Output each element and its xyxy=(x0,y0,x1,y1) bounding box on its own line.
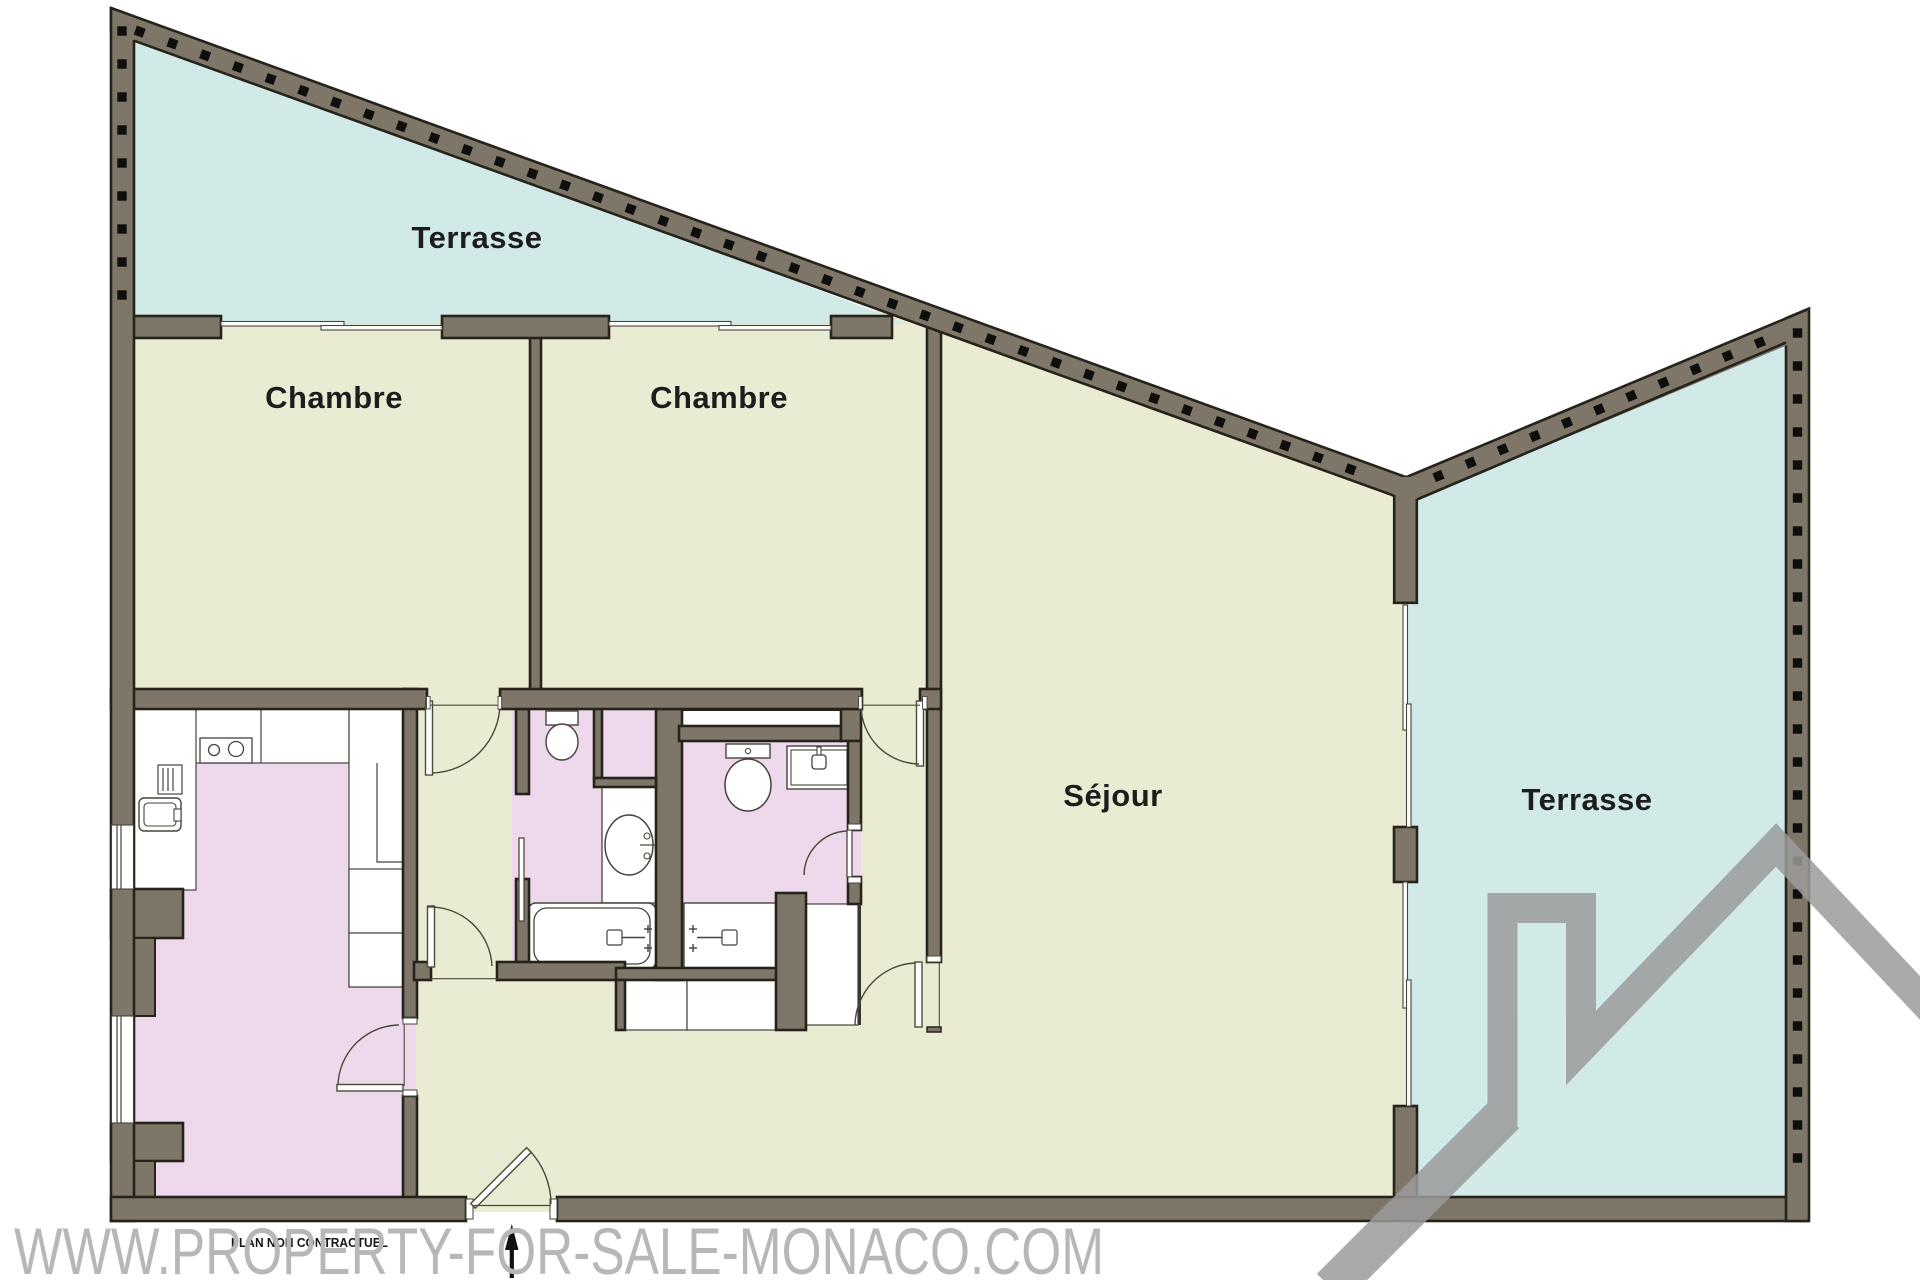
svg-text:WWW.PROPERTY-FOR-SALE-MONACO.C: WWW.PROPERTY-FOR-SALE-MONACO.COM xyxy=(14,1214,1104,1280)
svg-text:Chambre: Chambre xyxy=(265,380,403,415)
svg-text:Séjour: Séjour xyxy=(1063,778,1162,813)
svg-text:Terrasse: Terrasse xyxy=(412,220,543,255)
svg-text:Terrasse: Terrasse xyxy=(1522,782,1653,817)
svg-text:Chambre: Chambre xyxy=(650,380,788,415)
